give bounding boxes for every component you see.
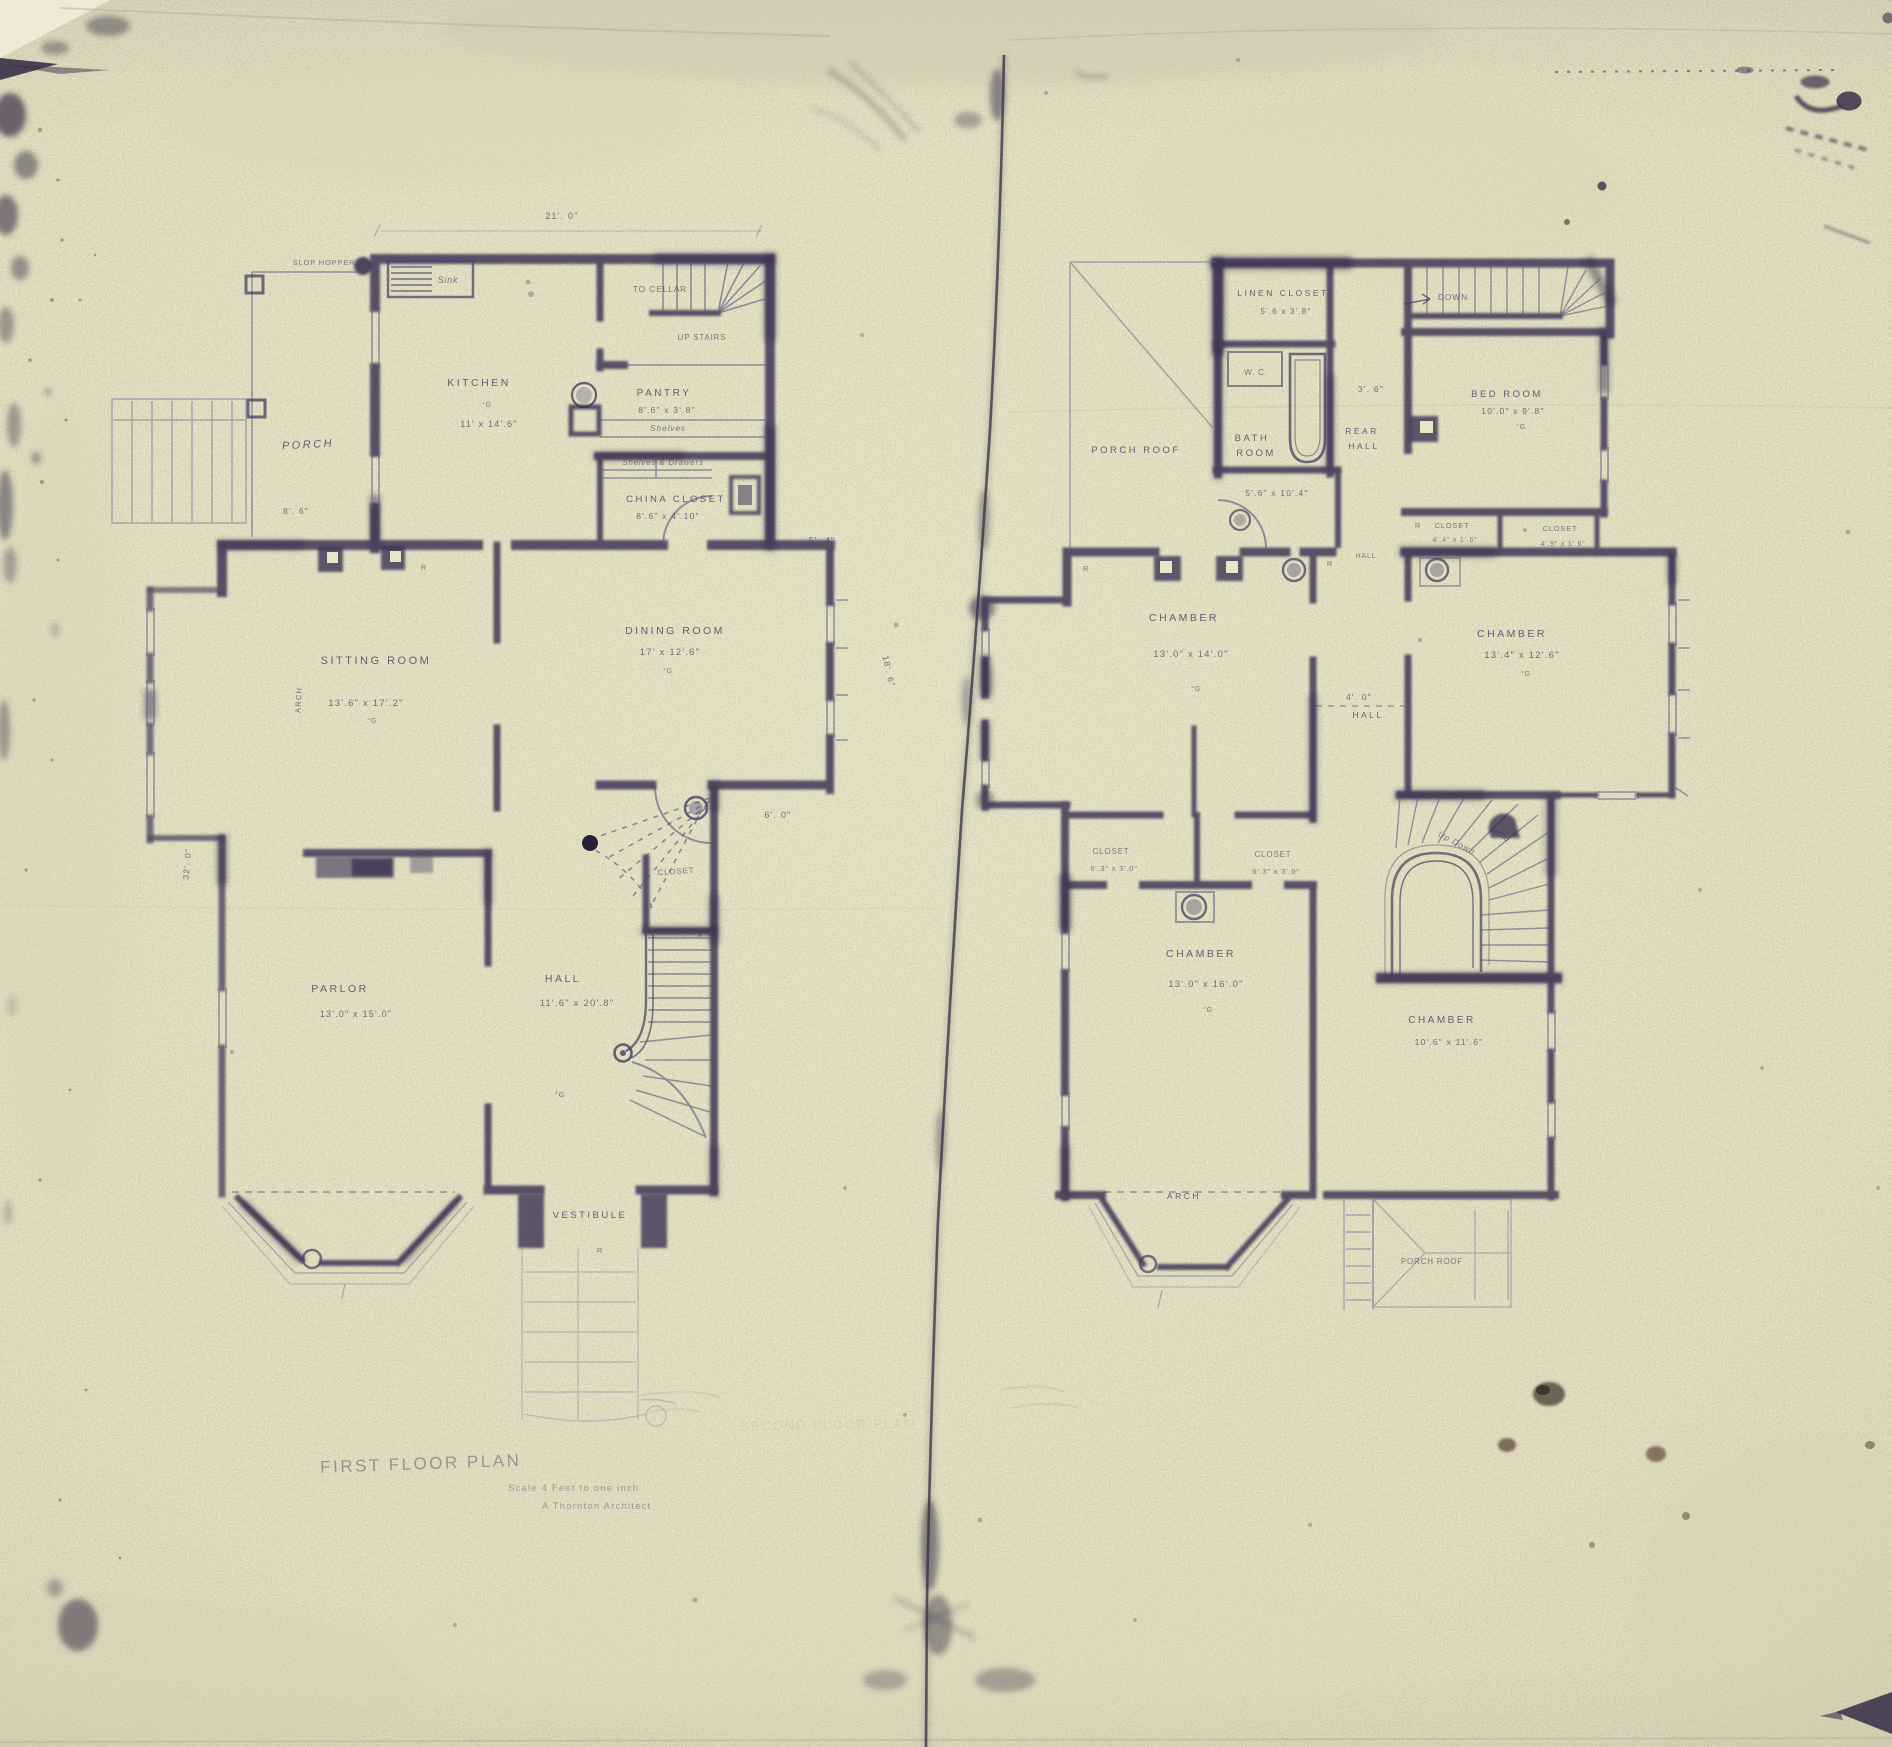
svg-text:6'.3" x 3'.0": 6'.3" x 3'.0" [1090,864,1137,873]
svg-text:6'. 0": 6'. 0" [764,810,791,820]
svg-text:CLOSET: CLOSET [1255,850,1292,859]
svg-text:°G: °G [482,401,492,409]
svg-text:HALL: HALL [1348,441,1379,451]
svg-text:4'.9" x 1'.6": 4'.9" x 1'.6" [1541,541,1586,548]
svg-text:4'.4" x 1'.6": 4'.4" x 1'.6" [1433,537,1478,544]
svg-text:CHAMBER: CHAMBER [1408,1015,1476,1026]
svg-text:KITCHEN: KITCHEN [447,377,511,389]
svg-text:REAR: REAR [1345,426,1379,436]
svg-text:UP STAIRS: UP STAIRS [678,333,727,342]
svg-text:PANTRY: PANTRY [637,388,692,399]
svg-text:PORCH ROOF: PORCH ROOF [1091,445,1180,456]
svg-text:CHINA CLOSET: CHINA CLOSET [626,494,726,505]
svg-text:TO CELLAR: TO CELLAR [633,284,687,294]
svg-text:CLOSET: CLOSET [1435,521,1470,530]
svg-text:ARCH: ARCH [1167,1191,1201,1201]
svg-text:4'. 0": 4'. 0" [1346,692,1372,702]
svg-text:SITTING ROOM: SITTING ROOM [321,655,432,667]
svg-text:PARLOR: PARLOR [311,983,368,995]
svg-text:8'.6" x 4'.10": 8'.6" x 4'.10" [636,511,699,521]
svg-text:10'.6" x 11'.6": 10'.6" x 11'.6" [1415,1037,1484,1047]
svg-text:°G: °G [1521,670,1531,678]
svg-text:DOWN: DOWN [1438,292,1468,302]
svg-text:13'.6" x 17'.2": 13'.6" x 17'.2" [328,698,403,709]
svg-text:CHAMBER: CHAMBER [1477,628,1547,640]
svg-text:CHAMBER: CHAMBER [1149,612,1219,624]
svg-text:13'.0" x 15'.0": 13'.0" x 15'.0" [320,1009,392,1019]
svg-text:CLOSET: CLOSET [1543,524,1578,533]
svg-text:R: R [421,563,427,572]
svg-text:CHAMBER: CHAMBER [1166,948,1236,960]
svg-text:A Thornton Architect: A Thornton Architect [542,1501,651,1512]
svg-text:5'.6 x 3'.8": 5'.6 x 3'.8" [1261,307,1312,316]
svg-text:SECOND FLOOR PLAN: SECOND FLOOR PLAN [740,1416,916,1434]
svg-text:°G: °G [555,1090,565,1099]
svg-text:11' x 14'.6": 11' x 14'.6" [460,419,517,429]
svg-text:R: R [1083,564,1089,573]
svg-text:Shelves & Drawers: Shelves & Drawers [622,458,704,467]
svg-text:SLOP HOPPER: SLOP HOPPER [293,258,355,267]
svg-text:HALL: HALL [1352,710,1383,720]
svg-text:W. C.: W. C. [1244,368,1268,377]
svg-text:13'.0" x 14'.0": 13'.0" x 14'.0" [1153,649,1228,660]
svg-text:10'.0" x 9'.8": 10'.0" x 9'.8" [1481,406,1544,416]
svg-text:3'. 6": 3'. 6" [1358,384,1384,394]
svg-text:PORCH ROOF: PORCH ROOF [1401,1257,1463,1266]
svg-text:°G: °G [1191,685,1201,693]
svg-text:5'- 4": 5'- 4" [809,535,836,545]
svg-text:BATH: BATH [1235,433,1270,444]
svg-text:BED ROOM: BED ROOM [1471,389,1543,400]
svg-text:11'.6" x 20'.8": 11'.6" x 20'.8" [540,998,615,1009]
svg-text:°G: °G [1203,1006,1213,1014]
svg-text:R: R [597,1246,603,1255]
svg-text:5'.6" x 10'.4": 5'.6" x 10'.4" [1245,488,1308,498]
svg-text:LINEN CLOSET: LINEN CLOSET [1237,288,1328,298]
svg-text:8'. 6": 8'. 6" [283,506,309,516]
svg-text:13'.0" x 16'.0": 13'.0" x 16'.0" [1168,979,1243,990]
svg-text:Shelves: Shelves [650,423,686,433]
svg-text:ROOM: ROOM [1236,448,1276,459]
svg-text:17' x 12'.6": 17' x 12'.6" [640,647,701,658]
svg-text:VESTIBULE: VESTIBULE [553,1210,628,1221]
svg-text:°G: °G [367,717,377,725]
svg-text:13'.4" x 12'.6": 13'.4" x 12'.6" [1484,650,1559,661]
svg-text:HALL: HALL [1356,553,1377,560]
svg-text:6'.3" x 3'.0": 6'.3" x 3'.0" [1252,867,1299,876]
svg-text:Sink: Sink [438,275,459,285]
svg-text:8'.6" x 3'.8": 8'.6" x 3'.8" [638,405,696,415]
svg-text:DINING ROOM: DINING ROOM [625,625,725,637]
svg-text:Scale 4 Feet to one inch: Scale 4 Feet to one inch [508,1483,639,1494]
svg-text:R: R [1327,559,1333,568]
svg-text:CLOSET: CLOSET [1093,847,1130,856]
svg-text:°G: °G [1516,423,1526,431]
svg-text:°G: °G [663,667,673,675]
svg-text:ARCH: ARCH [293,687,303,713]
svg-text:R: R [1415,521,1421,530]
svg-text:HALL: HALL [545,973,581,985]
svg-text:21'. 0": 21'. 0" [545,211,578,221]
